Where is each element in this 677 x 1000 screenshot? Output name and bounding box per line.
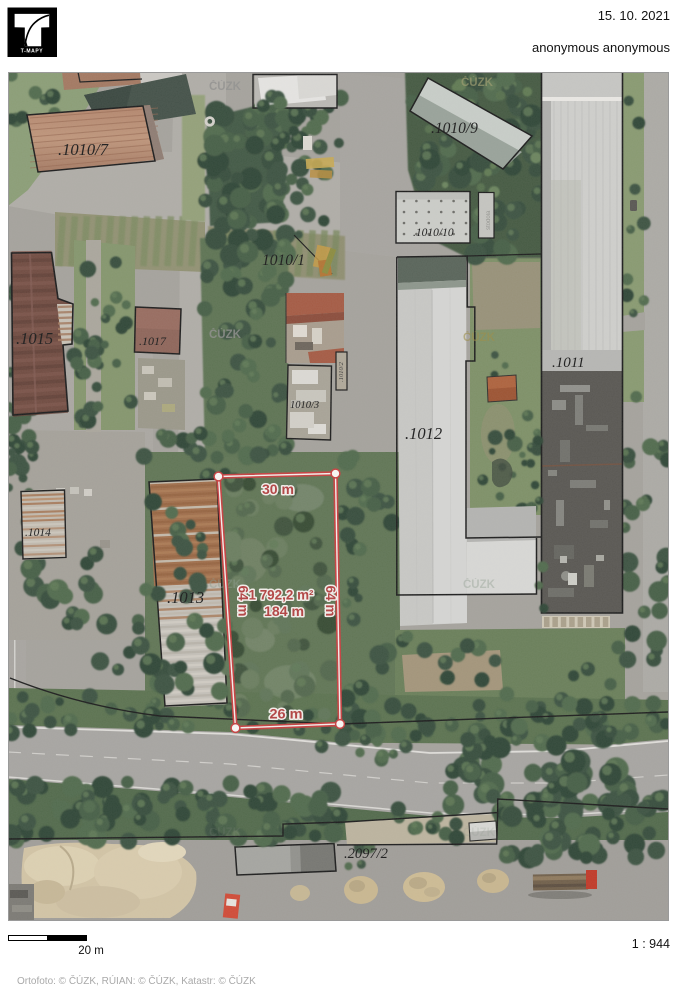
svg-text:T-MAPY: T-MAPY (21, 48, 44, 54)
svg-text:20 m: 20 m (78, 945, 104, 957)
